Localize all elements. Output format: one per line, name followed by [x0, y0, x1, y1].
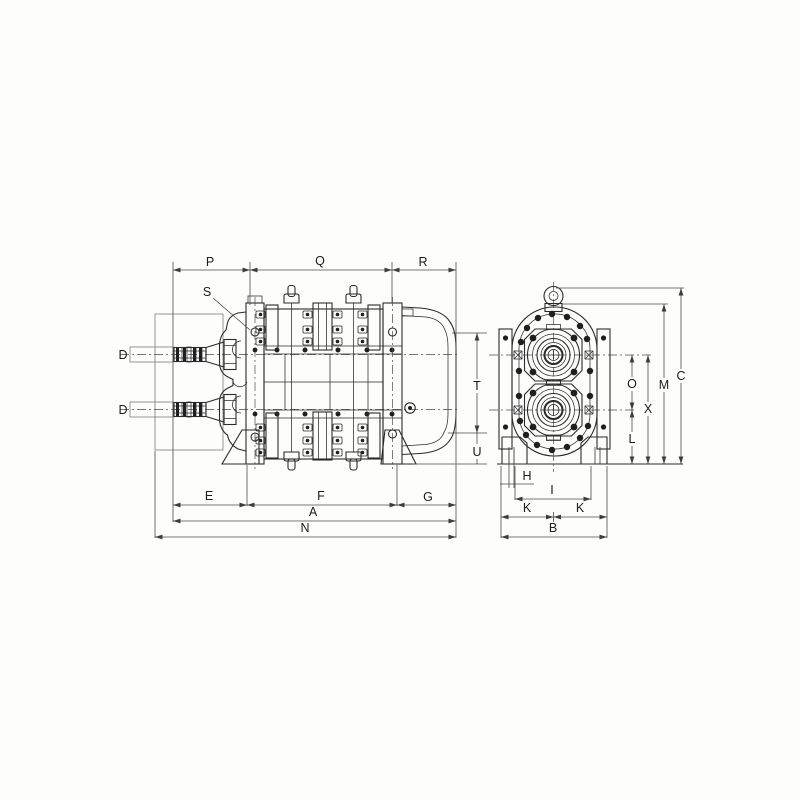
casing-bolts [516, 311, 593, 453]
dim-label-a: A [309, 505, 318, 519]
dim-label-l: L [629, 432, 636, 446]
dim-label-m: M [659, 378, 669, 392]
top-brackets [256, 303, 380, 350]
dim-label-u: U [472, 445, 481, 459]
dim-label-q: Q [315, 254, 325, 268]
bottom-shaft [120, 395, 458, 425]
dim-label-k-right: K [576, 501, 585, 515]
tie-rod [346, 286, 361, 471]
side-view: P Q R S D D T U E F G [118, 254, 487, 538]
dim-label-k-left: K [523, 501, 532, 515]
dim-label-d-bottom: D [118, 403, 127, 417]
drawing-page: P Q R S D D T U E F G [0, 0, 800, 800]
dim-label-g: G [423, 490, 433, 504]
dim-label-x: X [644, 402, 653, 416]
dim-label-c: C [676, 369, 685, 383]
dim-label-d-top: D [118, 348, 127, 362]
dim-label-b: B [549, 521, 557, 535]
dim-label-e: E [205, 489, 213, 503]
dim-label-h: H [522, 469, 531, 483]
cylinder-body [264, 309, 383, 459]
dim-label-r: R [418, 255, 427, 269]
dim-label-i: I [550, 483, 553, 497]
top-shaft [120, 340, 458, 370]
rear-foot [381, 430, 416, 464]
side-view-dimensions: P Q R S D D T U E F G [118, 254, 487, 538]
left-side-plate [499, 329, 512, 449]
dim-label-p: P [206, 255, 214, 269]
dim-label-f: F [317, 489, 325, 503]
end-view: C M X O L H I [489, 282, 686, 538]
dim-label-s: S [203, 285, 211, 299]
left-foot [502, 437, 527, 464]
tie-rod [284, 286, 299, 471]
side-view-body [120, 286, 458, 471]
phantom-outline [155, 314, 223, 450]
end-view-body [489, 282, 683, 472]
dim-label-t: T [473, 379, 481, 393]
dim-label-n: N [300, 521, 309, 535]
right-side-plate [597, 329, 610, 449]
technical-drawing: P Q R S D D T U E F G [0, 0, 800, 800]
right-foot [581, 437, 607, 464]
dim-label-o: O [627, 377, 637, 391]
